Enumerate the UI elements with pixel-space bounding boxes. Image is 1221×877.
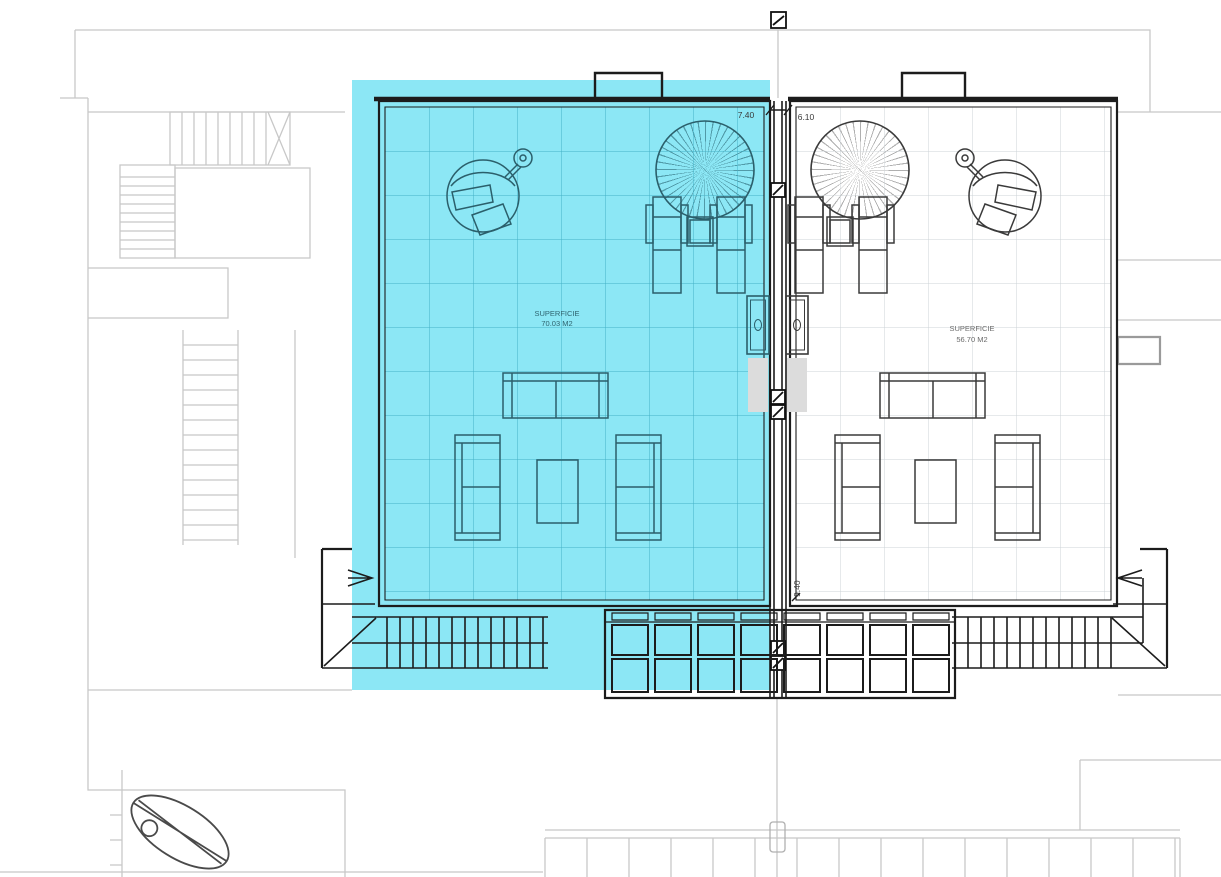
area-label-left: SUPERFICIE xyxy=(534,309,579,318)
context-stair-left-column-icon xyxy=(120,165,175,258)
unit-right-hotspot[interactable] xyxy=(790,100,1118,608)
tile-grid-left xyxy=(385,107,764,600)
ac-unit-right xyxy=(1118,337,1160,364)
chimney-right xyxy=(902,73,965,98)
context-stair-top-left-icon xyxy=(170,112,290,165)
dimension-width-left: 7.40 xyxy=(738,110,755,120)
stair-direction-arrow-left xyxy=(348,570,372,586)
context-lower-railing xyxy=(545,830,1180,877)
chimney-left xyxy=(595,73,662,98)
floor-plan-canvas: SUPERFICIE 70.03 M2 SUPERFICIE 56.70 M2 … xyxy=(0,0,1221,877)
satellite-dish-icon xyxy=(120,781,241,877)
area-value-left: 70.03 M2 xyxy=(541,319,572,328)
context-stair-vertical-icon xyxy=(183,345,238,540)
stair-direction-arrow-right xyxy=(1118,570,1142,586)
